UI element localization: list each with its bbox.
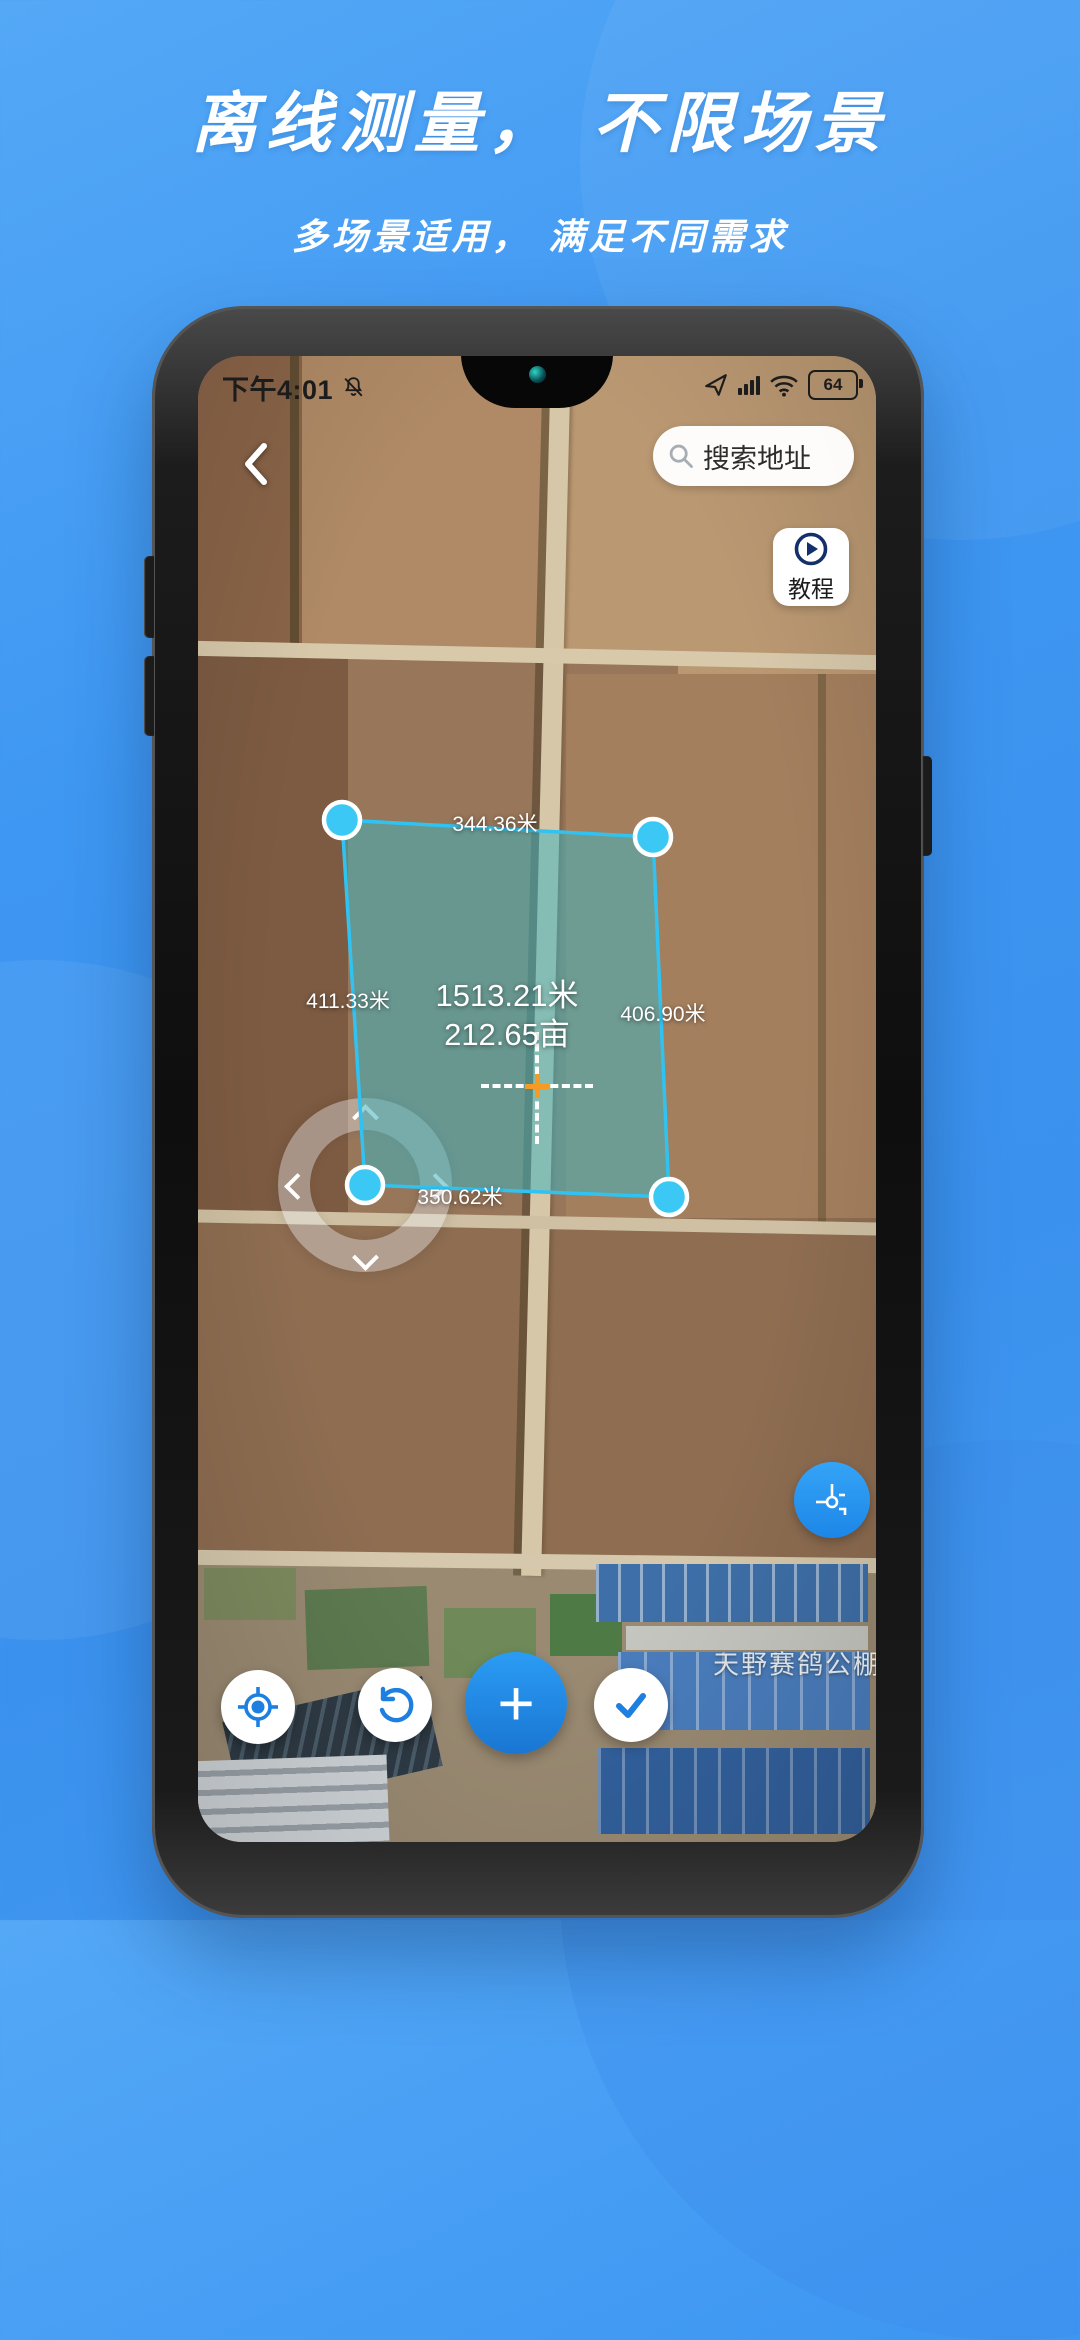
play-circle-icon [793,531,829,567]
front-camera [529,366,546,383]
edge-label-left: 411.33米 [306,985,390,1015]
check-icon [609,1683,653,1727]
search-placeholder: 搜索地址 [703,437,811,476]
phone-screen: 天野赛鸽公棚 344.36米 411.33米 406.90米 350.62米 1… [198,356,876,1842]
volume-down-button [144,656,154,736]
area-value: 212.65亩 [435,1015,578,1054]
vertex-crosshair-icon [812,1480,852,1520]
mute-bell-icon [341,375,366,400]
chevron-left-icon [234,438,280,490]
tutorial-button[interactable]: 教程 [773,528,849,606]
clock-label: 下午4:01 [222,368,366,407]
perimeter-value: 1513.21米 [435,976,578,1015]
nav-arrow-icon [703,372,729,398]
vertex-handle [347,1167,383,1203]
undo-button[interactable] [358,1668,432,1742]
confirm-button[interactable] [594,1668,668,1742]
edge-label-bottom: 350.62米 [417,1181,502,1211]
search-icon [667,442,695,470]
add-point-button[interactable]: + [465,1652,567,1754]
phone-mockup: 天野赛鸽公棚 344.36米 411.33米 406.90米 350.62米 1… [152,306,924,1918]
locate-button[interactable] [221,1670,295,1744]
locate-icon [236,1685,280,1729]
battery-icon: 64 [808,370,858,400]
volume-up-button [144,556,154,638]
crosshair-center-icon [525,1074,549,1098]
measurement-readout: 1513.21米 212.65亩 [435,976,578,1054]
vertex-handle [324,802,360,838]
back-button[interactable] [234,438,280,490]
signal-bars-icon [738,376,760,395]
undo-icon [374,1684,416,1726]
search-input[interactable]: 搜索地址 [653,426,854,486]
time-text: 下午4:01 [222,368,333,407]
wifi-icon [769,373,799,397]
tutorial-label: 教程 [788,570,834,604]
vertex-handle [651,1179,687,1215]
power-button [922,756,932,856]
page-subtitle: 多场景适用， 满足不同需求 [0,208,1080,260]
page-title: 离线测量， 不限场景 [0,70,1080,166]
battery-level: 64 [824,375,843,395]
vertex-handle [635,819,671,855]
edge-label-right: 406.90米 [620,998,705,1028]
vertex-crosshair-button[interactable] [794,1462,870,1538]
edge-label-top: 344.36米 [452,808,537,838]
